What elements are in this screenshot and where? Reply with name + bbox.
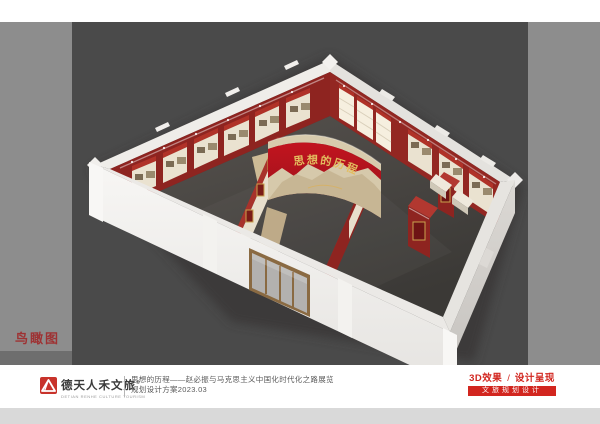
presentation-slide: 鸟瞰图	[0, 0, 600, 424]
footer-divider	[124, 376, 125, 397]
output-separator: /	[507, 373, 510, 384]
left-margin-shadow	[0, 351, 72, 365]
render-canvas: 思想的历程	[72, 22, 528, 365]
service-banner: 文旅规划设计	[468, 386, 556, 396]
left-gray-margin: 鸟瞰图	[0, 22, 72, 365]
top-white-band	[0, 0, 600, 22]
view-label: 鸟瞰图	[15, 328, 60, 347]
bottom-gray-strip	[0, 408, 600, 424]
output-label-block: 3D效果 / 设计呈现 文旅规划设计	[468, 373, 556, 396]
project-title-line2: 规划设计方案2023.03	[131, 385, 381, 395]
output-stage-label: 设计呈现	[515, 373, 555, 384]
output-type-label: 3D效果	[469, 373, 502, 384]
company-logo-icon	[40, 377, 57, 394]
logo-subtitle: DETIAN RENHE CULTURE TOURISM	[61, 394, 145, 399]
footer-band: 德天人禾文旅® DETIAN RENHE CULTURE TOURISM 思想的…	[0, 365, 600, 408]
project-title-block: 思想的历程——赵必振与马克思主义中国化时代化之路展览 规划设计方案2023.03	[131, 375, 381, 394]
project-title-line1: 思想的历程——赵必振与马克思主义中国化时代化之路展览	[131, 375, 381, 385]
right-gray-margin	[528, 22, 600, 365]
exhibition-hall-render: 思想的历程	[72, 22, 528, 365]
